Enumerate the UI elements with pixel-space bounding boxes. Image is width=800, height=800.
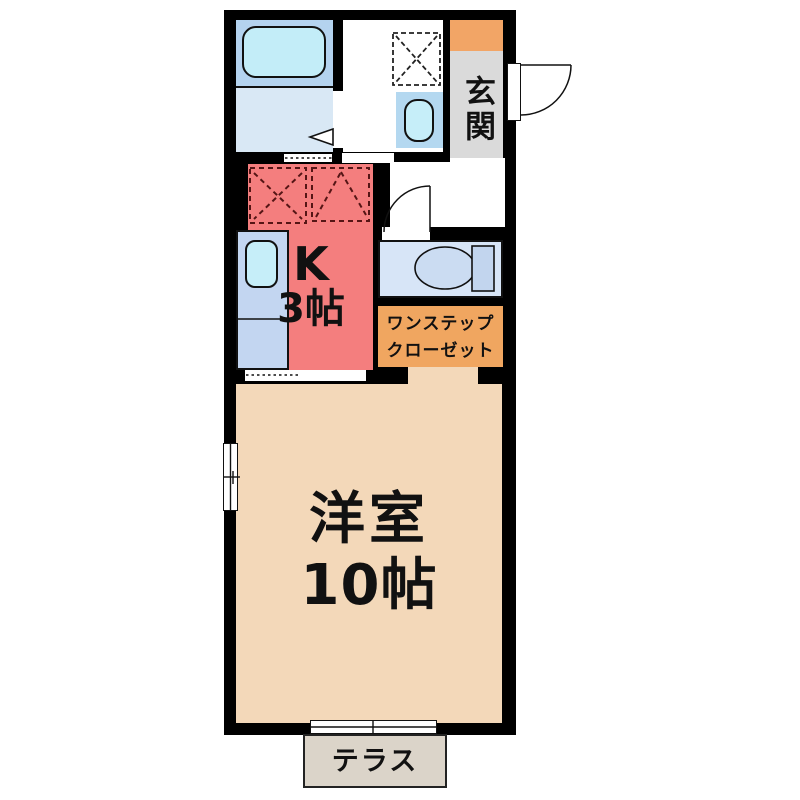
washbasin-bowl xyxy=(404,99,434,142)
bathtub xyxy=(242,26,326,78)
closet-label: ワンステップ クローゼット xyxy=(378,311,503,365)
bathroom-opening xyxy=(284,154,332,162)
floorplan: テラス xyxy=(0,0,800,800)
toilet-doorway xyxy=(382,227,430,241)
terrace-label: テラス xyxy=(332,748,418,775)
entrance-step xyxy=(450,20,503,51)
front-door-swing-icon xyxy=(521,65,571,115)
entrance-label: 玄関 xyxy=(450,62,503,157)
hallway xyxy=(450,158,505,227)
kitchen-label: K xyxy=(252,241,370,287)
toilet-room xyxy=(378,240,503,298)
western-room-size-label: 10帖 xyxy=(236,558,502,614)
terrace: テラス xyxy=(303,734,447,788)
hallway xyxy=(390,162,450,227)
closet-opening xyxy=(408,367,478,385)
kitchen-size-label: 3帖 xyxy=(252,289,370,329)
closet-label-line2: クローゼット xyxy=(387,341,495,361)
sliding-door-icon xyxy=(310,720,437,734)
western-room-label: 洋室 xyxy=(236,492,502,548)
closet-label-line1: ワンステップ xyxy=(387,314,495,334)
front-door xyxy=(507,63,521,121)
washroom-doorway xyxy=(342,153,394,163)
kitchen-room-opening xyxy=(245,370,366,381)
